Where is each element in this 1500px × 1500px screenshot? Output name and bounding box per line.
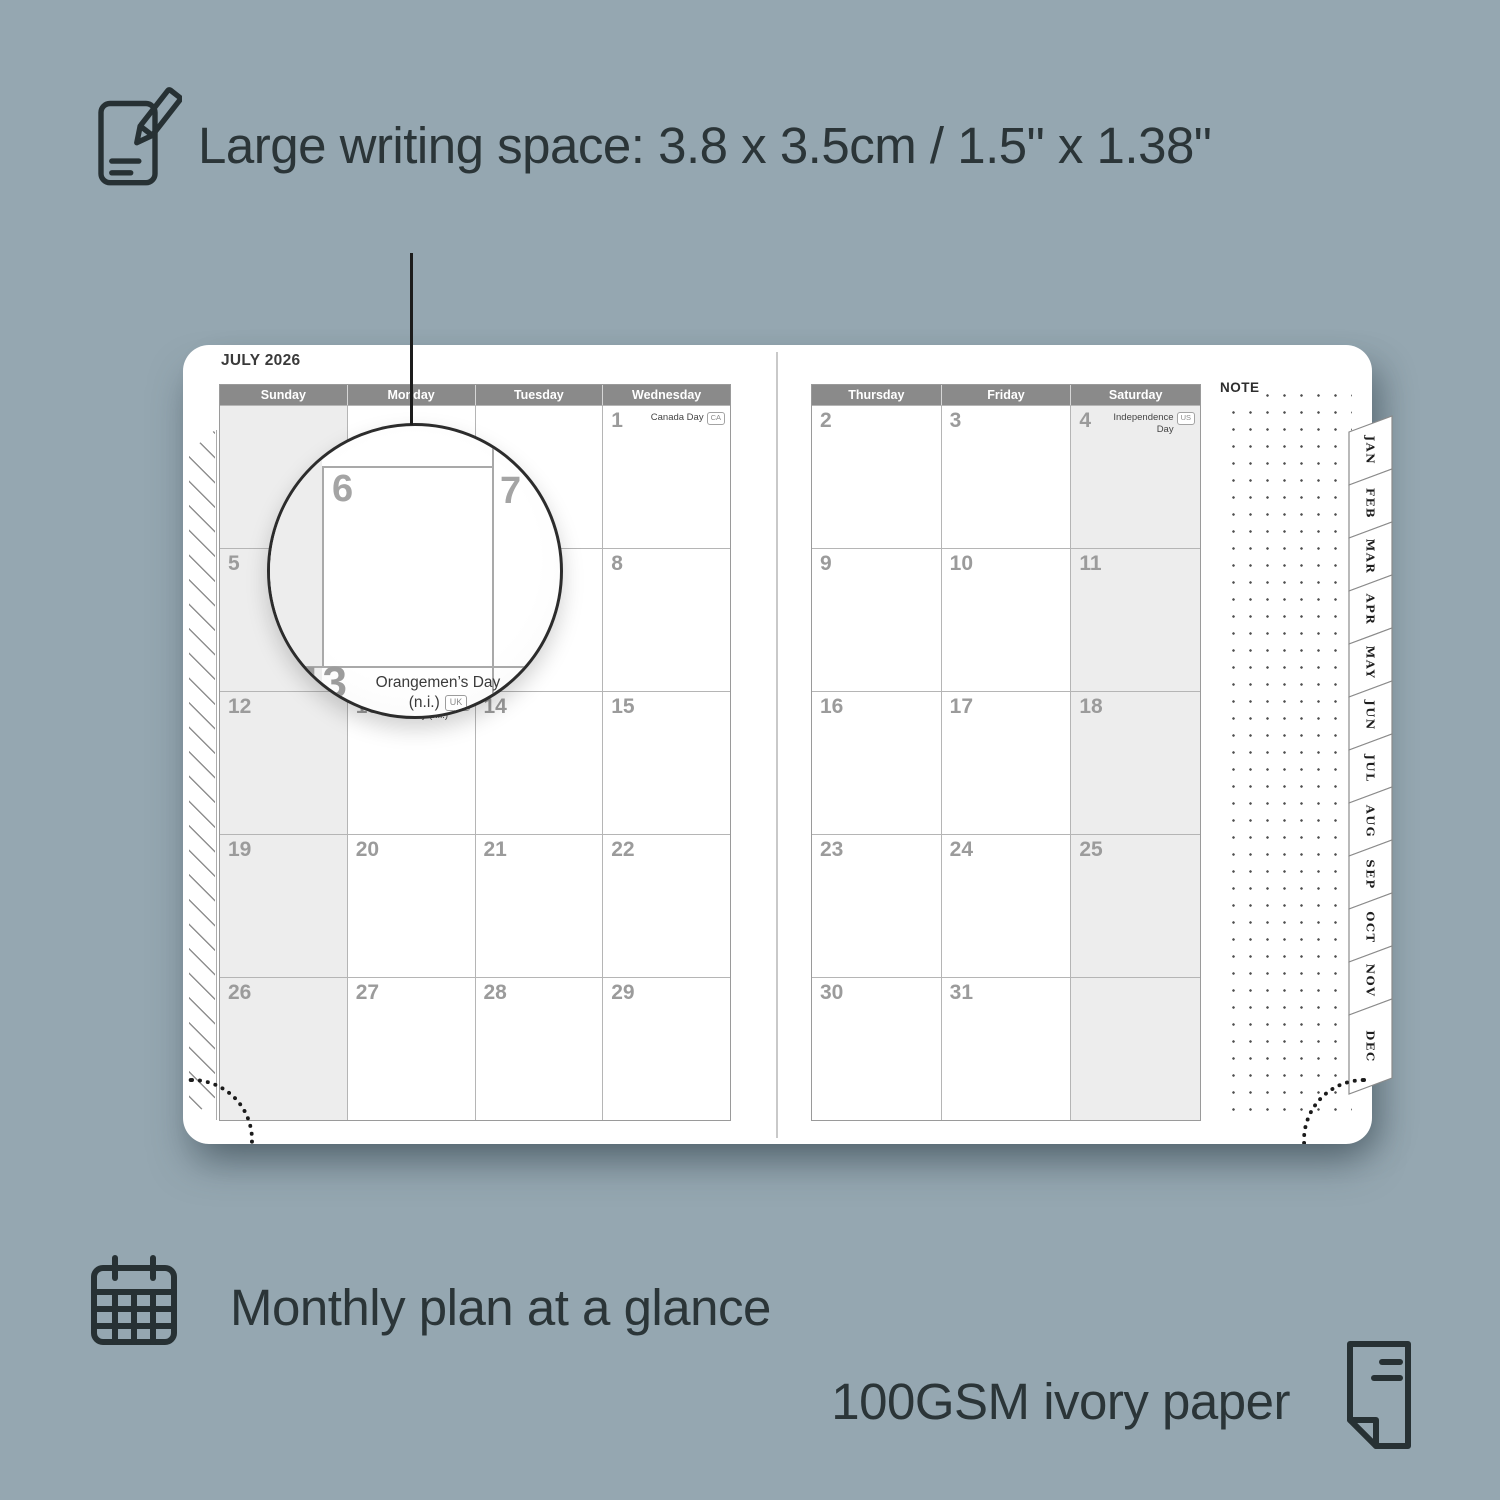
day-header-sunday: Sunday — [220, 385, 347, 405]
right-page-calendar: ThursdayFridaySaturday234Independence Da… — [811, 384, 1201, 1121]
magnified-grid-line — [322, 466, 324, 666]
day-number: 15 — [611, 695, 634, 719]
calendar-cell-8: 8 — [602, 549, 730, 691]
day-number: 1 — [611, 409, 623, 433]
product-image: Large writing space: 3.8 x 3.5cm / 1.5" … — [0, 0, 1500, 1500]
day-header-thursday: Thursday — [812, 385, 941, 405]
day-number: 16 — [820, 695, 843, 719]
month-tab-label: MAY — [1364, 646, 1378, 680]
calendar-cell-27: 27 — [347, 978, 475, 1120]
week-row: 26272829 — [220, 977, 730, 1120]
country-badge: US — [1177, 412, 1195, 425]
calendar-cell-18: 18 — [1070, 692, 1200, 834]
day-number: 2 — [820, 409, 832, 433]
month-title: JULY 2026 — [221, 352, 300, 370]
magnified-day-6: 6 — [332, 468, 353, 511]
day-header-saturday: Saturday — [1070, 385, 1200, 405]
magnified-country-badge: UK — [445, 695, 468, 711]
day-header-row: ThursdayFridaySaturday — [812, 385, 1200, 405]
paper-sheet-icon — [1338, 1338, 1420, 1454]
planner-spine — [776, 352, 778, 1138]
magnifier-circle: 6 7 13 Orangemen’s Day (n.i.) UK — [267, 423, 563, 719]
calendar-cell-31: 31 — [941, 978, 1071, 1120]
calendar-cell-15: 15 — [602, 692, 730, 834]
calendar-cell-29: 29 — [602, 978, 730, 1120]
day-number: 29 — [611, 981, 634, 1005]
calendar-cell-21: 21 — [475, 835, 603, 977]
week-row: 3031 — [812, 977, 1200, 1120]
day-number: 4 — [1079, 409, 1091, 433]
paper-label: 100GSM ivory paper — [831, 1372, 1290, 1431]
day-number: 10 — [950, 552, 973, 576]
month-tab-label: JAN — [1364, 435, 1378, 465]
stitch-corner-right — [1284, 1058, 1370, 1144]
note-label: NOTE — [1220, 380, 1265, 397]
day-number: 9 — [820, 552, 832, 576]
day-header-tuesday: Tuesday — [475, 385, 603, 405]
magnified-holiday-detail: (n.i.) — [409, 693, 440, 713]
day-header-row: SundayMondayTuesdayWednesday — [220, 385, 730, 405]
day-number: 22 — [611, 838, 634, 862]
day-number: 25 — [1079, 838, 1102, 862]
magnified-holiday: Orangemen’s Day (n.i.) UK — [334, 673, 542, 713]
page-edge-line — [216, 430, 217, 1120]
calendar-cell-24: 24 — [941, 835, 1071, 977]
day-number: 26 — [228, 981, 251, 1005]
month-tab-label: OCT — [1364, 911, 1378, 943]
day-number: 28 — [484, 981, 507, 1005]
week-row: 91011 — [812, 548, 1200, 691]
day-number: 23 — [820, 838, 843, 862]
day-number: 27 — [356, 981, 379, 1005]
month-tab-label: AUG — [1364, 804, 1378, 838]
day-number: 19 — [228, 838, 251, 862]
day-number: 12 — [228, 695, 251, 719]
calendar-cell-30: 30 — [812, 978, 941, 1120]
calendar-grid-icon — [84, 1252, 184, 1352]
calendar-cell-3: 3 — [941, 406, 1071, 548]
month-tab-label: SEP — [1364, 859, 1378, 889]
week-row: 232425 — [812, 834, 1200, 977]
calendar-cell-11: 11 — [1070, 549, 1200, 691]
day-header-friday: Friday — [941, 385, 1071, 405]
month-tab-label: APR — [1364, 593, 1378, 626]
week-row: 19202122 — [220, 834, 730, 977]
calendar-cell-16: 16 — [812, 692, 941, 834]
stitch-corner-left — [186, 1058, 272, 1144]
calendar-cell-14: 14 — [475, 692, 603, 834]
magnified-holiday-name: Orangemen’s Day — [334, 673, 542, 693]
monthly-plan-label: Monthly plan at a glance — [230, 1278, 771, 1337]
day-number: 17 — [950, 695, 973, 719]
day-number: 8 — [611, 552, 623, 576]
day-number: 5 — [228, 552, 240, 576]
day-number: 11 — [1079, 552, 1101, 576]
calendar-cell-23: 23 — [812, 835, 941, 977]
calendar-cell-2: 2 — [812, 406, 941, 548]
day-number: 20 — [356, 838, 379, 862]
country-badge: CA — [707, 412, 725, 425]
month-tab-label: NOV — [1364, 964, 1378, 998]
calendar-cell-19: 19 — [220, 835, 347, 977]
week-row: 234Independence DayUS — [812, 405, 1200, 548]
week-row: 161718 — [812, 691, 1200, 834]
calendar-cell-4: 4Independence DayUS — [1070, 406, 1200, 548]
magnified-day-7: 7 — [500, 470, 521, 513]
calendar-cell-22: 22 — [602, 835, 730, 977]
month-tab-label: FEB — [1364, 488, 1378, 519]
page-edge-hatching — [189, 430, 215, 1120]
pointer-line — [410, 253, 413, 425]
writing-space-label: Large writing space: 3.8 x 3.5cm / 1.5" … — [198, 116, 1211, 175]
month-tab-label: MAR — [1364, 539, 1378, 575]
calendar-cell-17: 17 — [941, 692, 1071, 834]
calendar-cell-28: 28 — [475, 978, 603, 1120]
day-number: 3 — [950, 409, 962, 433]
month-tab-label: JUL — [1364, 753, 1378, 782]
day-number: 21 — [484, 838, 507, 862]
month-tab-label: JUN — [1364, 699, 1378, 730]
note-dot-grid: NOTE — [1218, 384, 1352, 1114]
calendar-cell-empty — [1070, 978, 1200, 1120]
day-number: 18 — [1079, 695, 1102, 719]
holiday-label: Independence DayUS — [1103, 412, 1195, 436]
day-header-wednesday: Wednesday — [602, 385, 730, 405]
calendar-cell-25: 25 — [1070, 835, 1200, 977]
day-number: 24 — [950, 838, 973, 862]
calendar-cell-1: 1Canada DayCA — [602, 406, 730, 548]
day-number: 30 — [820, 981, 843, 1005]
notepad-pencil-icon — [92, 80, 182, 190]
month-tabs: JANFEBMARAPRMAYJUNJULAUGSEPOCTNOVDEC — [1348, 402, 1394, 1102]
day-number: 31 — [950, 981, 973, 1005]
calendar-cell-20: 20 — [347, 835, 475, 977]
calendar-cell-10: 10 — [941, 549, 1071, 691]
calendar-cell-9: 9 — [812, 549, 941, 691]
holiday-label: Canada DayCA — [635, 412, 725, 425]
